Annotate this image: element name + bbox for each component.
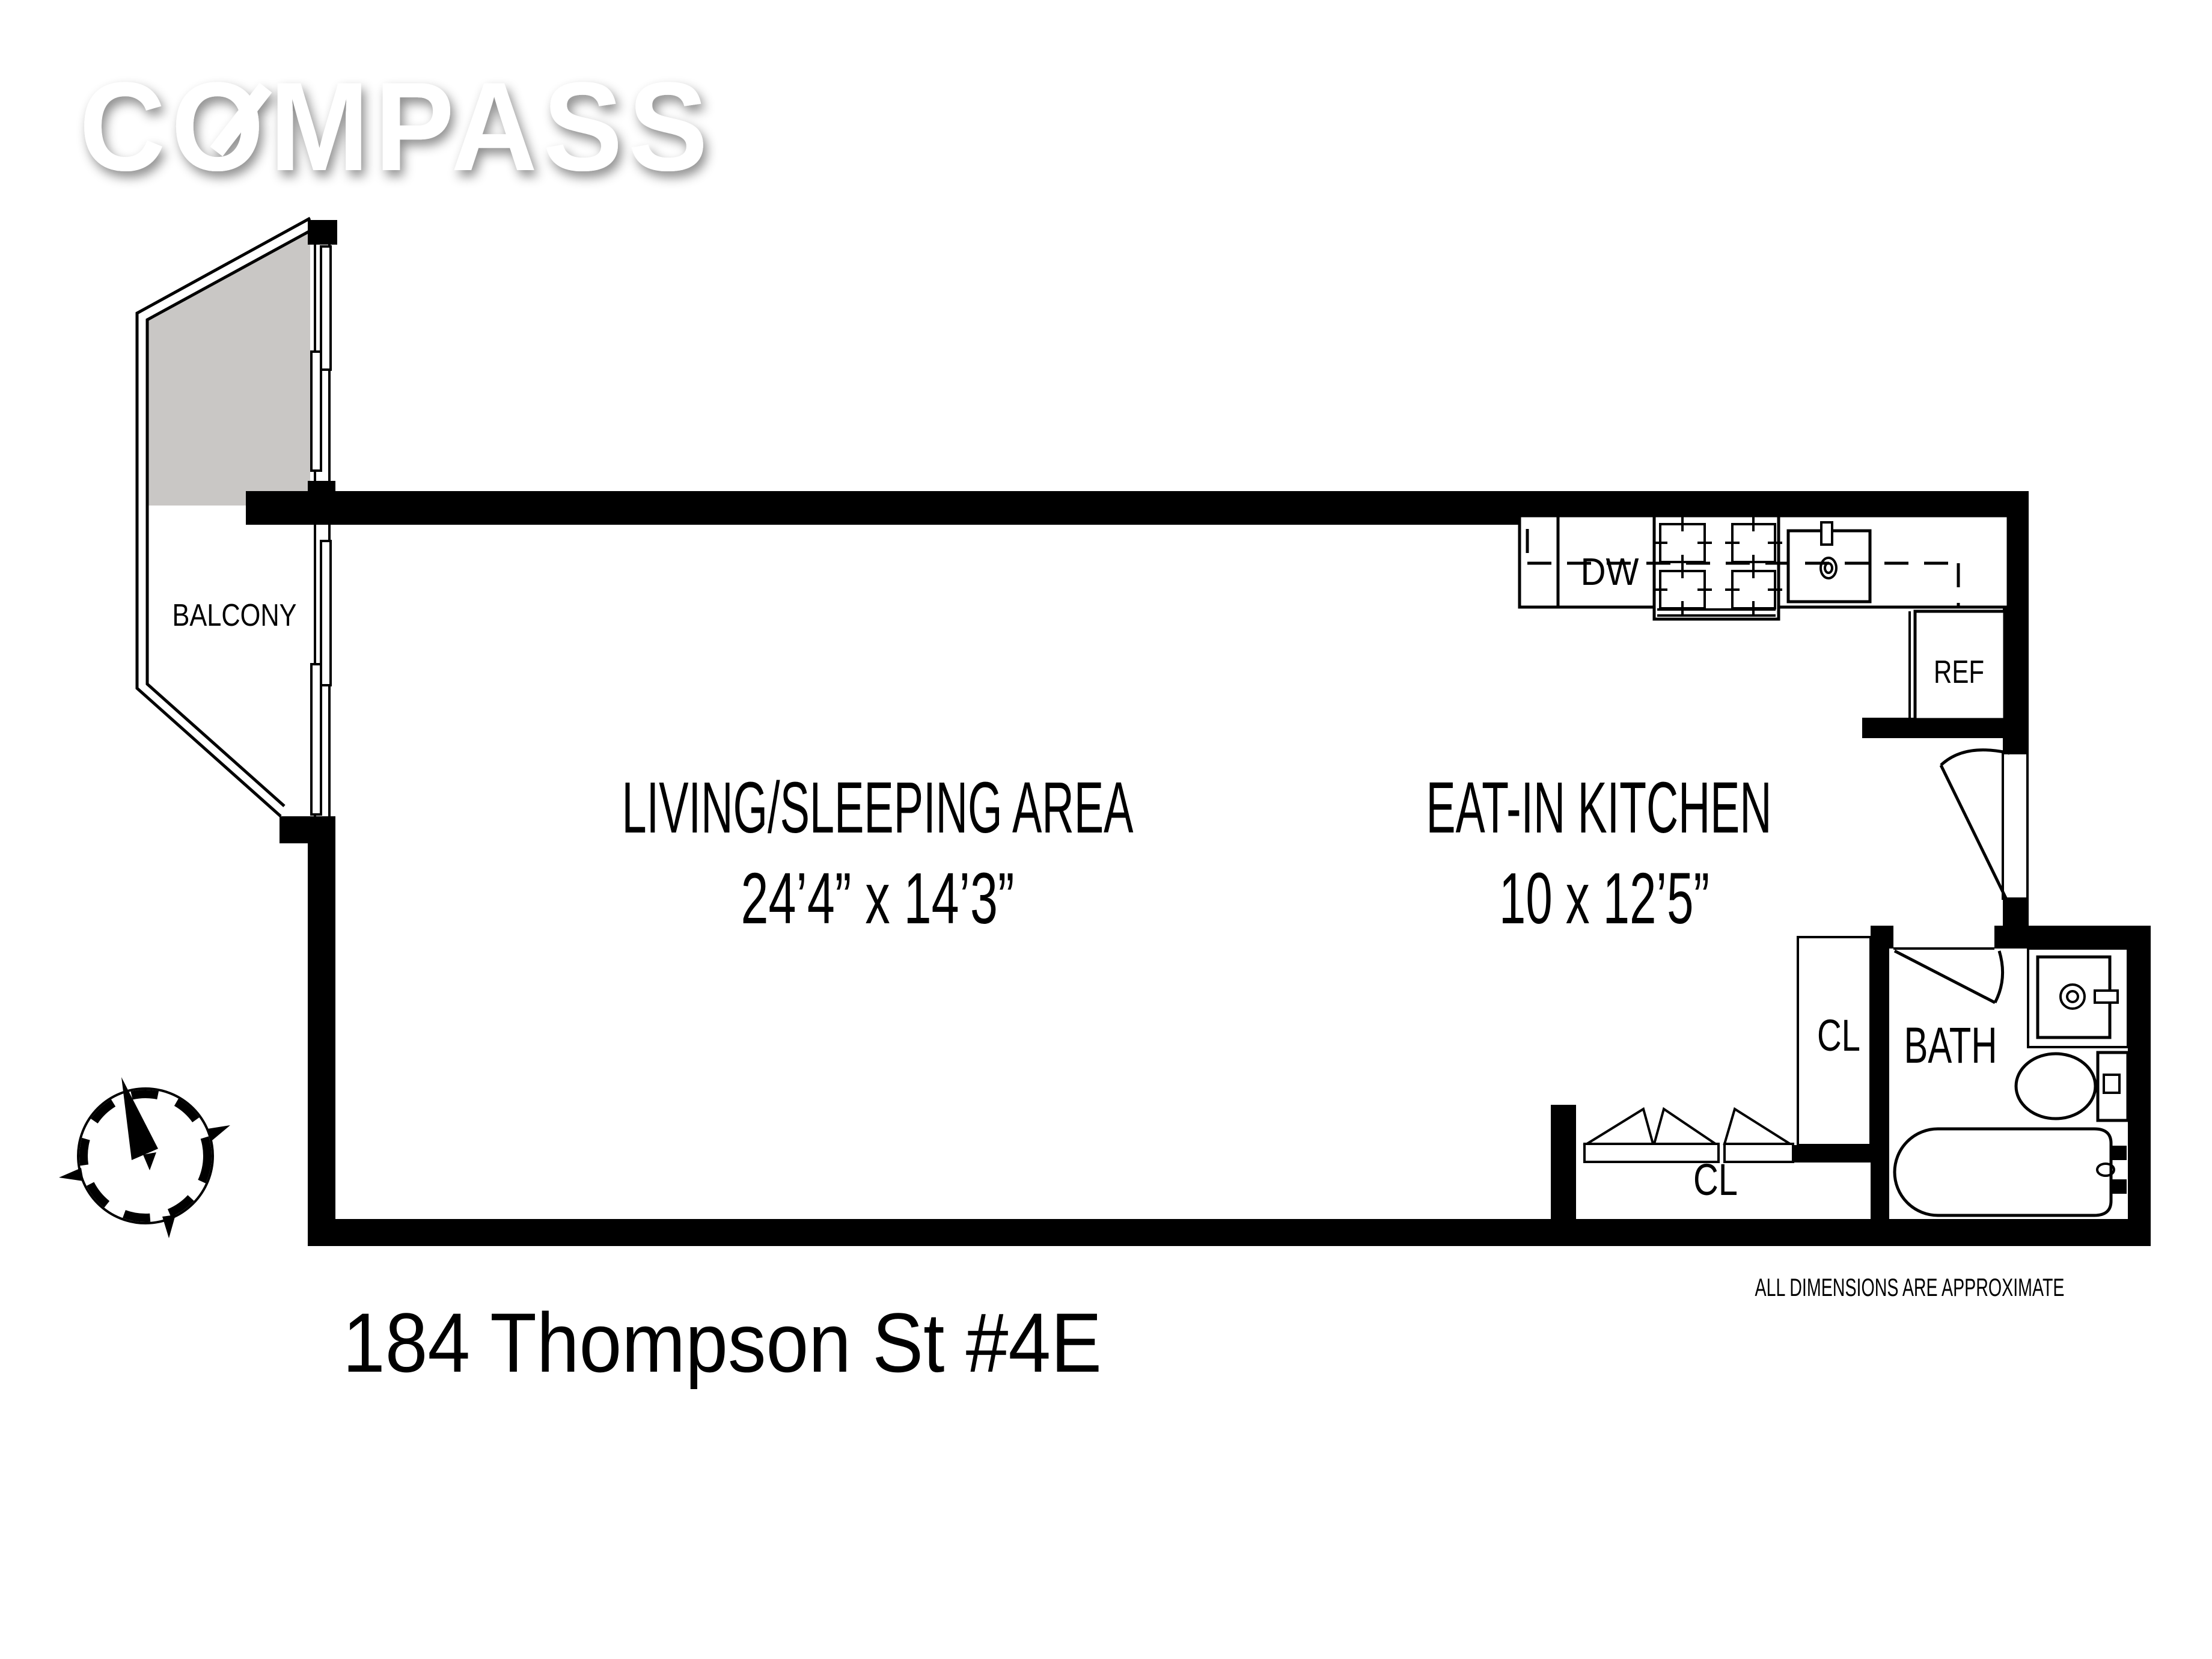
floorplan-svg: COMPASS BALCONY — [0, 0, 2212, 1659]
balcony-label: BALCONY — [173, 598, 297, 633]
sliding-window-upper-panel — [311, 352, 321, 471]
living-area-label: LIVING/SLEEPING AREA — [622, 766, 1134, 848]
wall-bath-top — [1994, 926, 2151, 949]
wall-closet-jamb — [1551, 1105, 1576, 1219]
sliding-door-lower-panel — [321, 541, 331, 685]
door-open-leaf — [1941, 765, 2006, 898]
kitchen-area-label: EAT-IN KITCHEN — [1426, 766, 1772, 848]
sliding-window-upper-panel — [321, 246, 331, 370]
wall-bottom — [308, 1219, 2151, 1246]
burner-icon — [1725, 564, 1782, 616]
door-swing-arc — [1995, 951, 2003, 1003]
wall-closet-stub — [1793, 1145, 1871, 1163]
bifold-door-panel-icon — [1587, 1109, 1653, 1144]
compass-logo: COMPASS — [79, 56, 713, 197]
closet-label-hall: CL — [1817, 1010, 1860, 1060]
kitchen-counter: DW — [1520, 516, 2008, 619]
closet-bottom: CL — [1584, 1109, 1793, 1205]
disclaimer: ALL DIMENSIONS ARE APPROXIMATE — [1755, 1273, 2065, 1301]
compass-rose-icon: N — [59, 1077, 230, 1238]
door-leaf — [2003, 753, 2027, 899]
logo-text: COMPASS — [79, 56, 713, 197]
compass-spike-icon — [59, 1168, 84, 1181]
bathroom: BATH — [1895, 949, 2128, 1215]
tub-faucet-icon — [2112, 1146, 2127, 1160]
tub-faucet-icon — [2112, 1179, 2127, 1194]
wall-balcony-bottom-stub — [280, 816, 335, 843]
compass-spike-icon — [162, 1215, 176, 1238]
balcony-shade — [147, 231, 310, 506]
refrigerator: REF — [1910, 611, 2005, 720]
range-stove — [1653, 516, 1782, 619]
toilet-bowl — [2016, 1054, 2095, 1119]
kitchen-door — [1941, 750, 2027, 899]
dishwasher-label: DW — [1581, 550, 1640, 593]
bathtub-outline — [1895, 1129, 2111, 1215]
toilet-flush-icon — [2104, 1075, 2119, 1093]
closet-bottom-label: CL — [1693, 1155, 1738, 1205]
wall-bath-top-left-stub — [1871, 926, 1893, 949]
wall-balcony-corner-block — [308, 220, 337, 245]
bath-door — [1893, 949, 2003, 1003]
page-title: 184 Thompson St #4E — [343, 1295, 1102, 1390]
burner-icon — [1653, 517, 1712, 569]
wall-bath-right — [2128, 949, 2151, 1219]
wall-bath-left — [1871, 949, 1889, 1219]
burner-icon — [1653, 564, 1712, 616]
bifold-door-panel-icon — [1725, 1109, 1790, 1144]
wall-top — [246, 491, 2029, 516]
toilet — [2016, 1053, 2128, 1120]
door-open-leaf — [1895, 951, 1995, 1003]
closet-vertical: CL — [1798, 937, 1871, 1145]
sliding-glass-wall — [311, 245, 331, 816]
sliding-door-lower-panel — [311, 664, 321, 814]
sink-faucet-icon — [1821, 522, 1832, 545]
living-area-dims: 24’4” x 14’3” — [741, 857, 1015, 939]
floorplan-page: COMPASS BALCONY — [0, 0, 2212, 1659]
bath-vanity — [2028, 949, 2128, 1047]
burner-icon — [1725, 517, 1782, 569]
wall-left — [308, 843, 335, 1246]
wall-top-step — [246, 514, 1526, 525]
compass-spike-icon — [207, 1125, 230, 1141]
bath-sink-faucet-icon — [2095, 991, 2118, 1003]
bifold-door-panel-icon — [1654, 1109, 1716, 1144]
refrigerator-label: REF — [1934, 654, 1984, 690]
kitchen-area-dims: 10 x 12’5” — [1499, 857, 1709, 939]
door-swing-arc — [1941, 750, 2009, 765]
bath-label: BATH — [1904, 1017, 1997, 1074]
bathtub — [1895, 1129, 2127, 1215]
wall-balcony-pillar — [308, 481, 335, 520]
